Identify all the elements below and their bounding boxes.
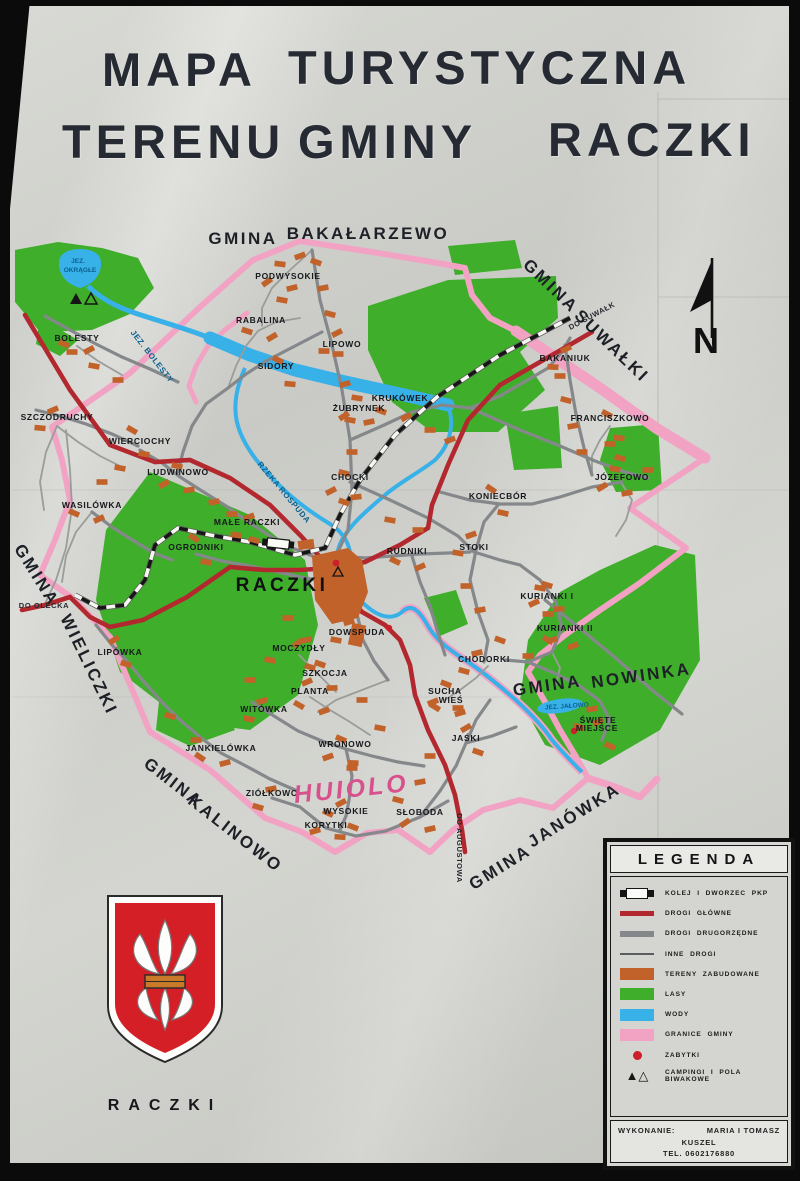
rail-icon <box>618 887 656 900</box>
map-label-vil: KRUKÓWEK <box>372 392 429 403</box>
map-label-town: RACZKI <box>236 575 329 596</box>
map-label-vil: OGRODNIKI <box>168 542 223 552</box>
map-label-vil: KURIANKI I <box>520 591 573 601</box>
building-block <box>333 351 344 357</box>
building-block <box>494 635 506 644</box>
building-block <box>283 615 294 621</box>
building-block <box>114 464 126 471</box>
photo-of-map-board: { "title": {"l1a":"MAPA","l1b":"TURYSTYC… <box>0 0 800 1181</box>
building-block <box>227 511 238 517</box>
map-label-vil: LIPOWO <box>323 339 362 349</box>
building-block <box>425 753 436 759</box>
legend-row: GRANICE GMINY <box>618 1028 780 1041</box>
building-block <box>245 677 256 683</box>
building-block <box>553 606 564 612</box>
credit-name2: KUSZEL <box>616 1138 782 1147</box>
map-label-gmina: BAKAŁARZEWO <box>287 224 450 243</box>
map-label-vil: SIDORY <box>258 361 294 371</box>
map-label-vil: WIEŚ <box>439 694 464 705</box>
map-label-vil: WASILÓWKA <box>62 499 122 510</box>
map-label-vil: PODWYSOKIE <box>255 271 321 281</box>
legend-row: WODY <box>618 1008 780 1021</box>
legend-row: DROGI DRUGORZĘDNE <box>618 927 780 940</box>
building-block <box>414 778 426 785</box>
building-block <box>458 667 470 675</box>
bar-thin-icon <box>618 948 656 961</box>
building-block <box>347 760 358 766</box>
map-label-vil: WYSOKIE <box>323 806 368 816</box>
map-label-vil: DOWSPUDA <box>329 627 385 637</box>
building-block <box>523 653 534 659</box>
building-block <box>374 724 386 731</box>
building-block <box>389 556 401 566</box>
map-label-vil: SZKOCJA <box>302 668 348 678</box>
legend-item-label: WODY <box>665 1011 689 1018</box>
map-label-gmina: GMINA <box>208 229 277 248</box>
building-block <box>357 697 368 703</box>
building-block <box>276 296 288 303</box>
map-label-waterlbl: RZEKA ROSPUDA <box>256 460 313 525</box>
legend-row: TERENY ZABUDOWANE <box>618 968 780 981</box>
map-label-vil: JANKIELÓWKA <box>186 742 257 753</box>
building-block <box>294 251 306 260</box>
map-label-vil: SZCZODRUCHY <box>21 412 94 422</box>
legend-item-label: DROGI GŁÓWNE <box>665 910 732 917</box>
building-block <box>97 479 108 485</box>
map-label-vil: CHOCKI <box>331 472 369 482</box>
legend-title: LEGENDA <box>610 845 788 873</box>
credit-name: MARIA I TOMASZ <box>707 1126 780 1135</box>
legend-row: LASY <box>618 988 780 1001</box>
building-block <box>284 381 295 388</box>
swatch-icon <box>618 1008 656 1021</box>
building-block <box>560 396 572 404</box>
building-block <box>350 494 362 501</box>
building-block <box>351 394 363 401</box>
building-block <box>347 765 358 771</box>
map-label-vil: BAKANIUK <box>540 353 591 363</box>
building-block <box>126 425 138 435</box>
map-label-vil: RUDNIKI <box>387 546 427 556</box>
map-label-vil: MIEJSCE <box>576 723 618 733</box>
building-block <box>461 583 472 589</box>
building-block <box>384 516 396 523</box>
map-label-vil: SŁOBODA <box>396 807 443 817</box>
legend-credit: WYKONANIE: MARIA I TOMASZ KUSZEL TEL. 06… <box>610 1120 788 1163</box>
building-block <box>399 818 411 829</box>
map-label-vil: WRONOWO <box>318 739 371 749</box>
building-block <box>67 349 78 355</box>
building-block <box>543 611 554 617</box>
legend-item-label: TERENY ZABUDOWANE <box>665 971 760 978</box>
map-label-vil: WITÓWKA <box>240 703 287 714</box>
crest-caption: RACZKI <box>80 1097 250 1115</box>
legend-row: ZABYTKI <box>618 1049 780 1062</box>
legend-row: KOLEJ I DWORZEC PKP <box>618 887 780 900</box>
swatch-icon <box>618 968 656 981</box>
legend-row: INNE DROGI <box>618 948 780 961</box>
legend-item-label: ZABYTKI <box>665 1052 700 1059</box>
map-label-vil: PLANTA <box>291 686 329 696</box>
legend-panel: LEGENDA KOLEJ I DWORZEC PKPDROGI GŁÓWNED… <box>603 838 795 1170</box>
swatch-icon <box>618 988 656 1001</box>
building-block <box>274 261 286 268</box>
building-block <box>330 636 342 644</box>
bar-road-icon <box>618 927 656 940</box>
legend-item-label: GRANICE GMINY <box>665 1031 734 1038</box>
triangles-icon: ▲△ <box>618 1069 656 1082</box>
building-block <box>605 441 616 447</box>
map-label-vil: BOLESTY <box>54 333 99 343</box>
legend-row: ▲△CAMPINGI I POLA BIWAKOWE <box>618 1069 780 1083</box>
map-label-watersm: OKRĄGŁE <box>64 267 97 274</box>
swatch-icon <box>618 1028 656 1041</box>
credit-label: WYKONANIE: <box>618 1126 675 1135</box>
building-block <box>363 418 375 426</box>
map-label-vil: CHODORKI <box>458 654 510 664</box>
building-block <box>191 737 202 743</box>
building-block <box>293 700 305 710</box>
building-block <box>424 825 436 833</box>
map-label-vil: JÓZEFOWO <box>595 471 649 482</box>
map-label-vil: KONIECBÓR <box>469 490 527 501</box>
building-block <box>555 373 566 379</box>
map-label-graffiti: HUIOLO <box>292 769 410 809</box>
building-block <box>219 759 231 767</box>
map-label-vil: KORYTKI <box>305 820 348 830</box>
map-label-roadlbl: DO OLECKA <box>19 601 69 610</box>
building-block <box>322 753 334 762</box>
legend-item-label: KOLEJ I DWORZEC PKP <box>665 890 768 897</box>
bar-road-icon <box>618 907 656 920</box>
map-label-vil: ZIÓŁKOWO <box>246 787 298 798</box>
map-label-vil: LIPÓWKA <box>97 646 142 657</box>
map-label-vil: ŻUBRYNEK <box>333 403 386 413</box>
legend-item-label: INNE DROGI <box>665 951 716 958</box>
building-block <box>425 427 436 433</box>
legend-item-label: LASY <box>665 991 686 998</box>
dot-icon <box>618 1049 656 1062</box>
legend-row: DROGI GŁÓWNE <box>618 907 780 920</box>
building-block <box>286 284 298 292</box>
building-block <box>413 527 424 533</box>
building-block <box>567 422 579 429</box>
map-label-gmina: GMINA <box>466 841 535 894</box>
map-label-vil: MAŁE RACZKI <box>214 517 280 527</box>
building-block <box>347 822 359 831</box>
building-block <box>577 449 588 455</box>
building-block <box>347 449 358 455</box>
map-label-vil: LUDWINOWO <box>147 467 209 477</box>
map-label-vil: MOCZYDŁY <box>272 643 325 653</box>
map-label-vil: WIERCIOCHY <box>109 436 171 446</box>
building-block <box>547 364 558 370</box>
coat-of-arms: RACZKI <box>80 890 250 1115</box>
map-label-vil: JAŚKI <box>452 732 481 743</box>
credit-phone: TEL. 0602176880 <box>616 1149 782 1158</box>
map-label-vil: RABALINA <box>236 315 286 325</box>
legend-item-label: DROGI DRUGORZĘDNE <box>665 930 758 937</box>
map-label-watersm: JEZ. <box>71 258 85 265</box>
map-label-vil: FRANCISZKOWO <box>571 413 650 423</box>
building-block <box>113 377 124 383</box>
map-label-gmina: KALINOWO <box>184 791 286 876</box>
building-block <box>241 327 253 336</box>
building-block <box>266 332 278 342</box>
building-block <box>497 509 509 517</box>
legend-item-label: CAMPINGI I POLA BIWAKOWE <box>665 1069 780 1083</box>
building-block <box>465 531 477 540</box>
map-label-roadlbl: DO AUGUSTOWA <box>455 813 464 883</box>
map-label-vil: STOKI <box>459 542 488 552</box>
building-block <box>34 425 45 432</box>
map-label-compass: N <box>693 320 719 361</box>
building-block <box>88 362 100 369</box>
building-block <box>472 748 484 757</box>
legend-items: KOLEJ I DWORZEC PKPDROGI GŁÓWNEDROGI DRU… <box>610 876 788 1117</box>
building-block <box>331 328 343 338</box>
building-block <box>325 486 337 496</box>
raczki-crest-shield <box>80 890 250 1082</box>
map-label-vil: KURIANKI II <box>537 623 593 633</box>
map-label-gmina: GMINA <box>10 541 63 610</box>
building-block <box>334 834 345 840</box>
